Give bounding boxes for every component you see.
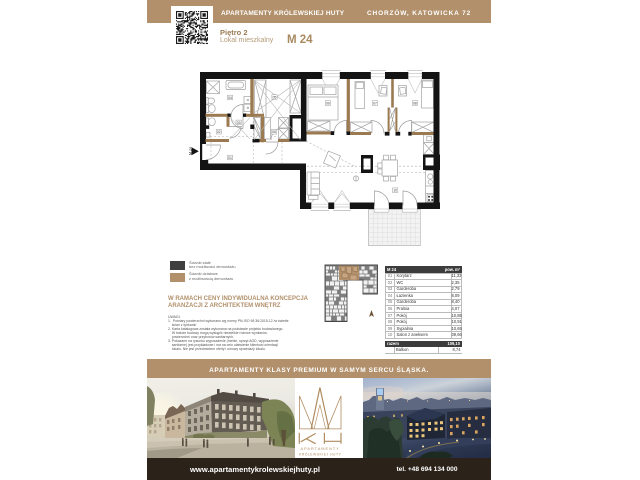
svg-text:10: 10 — [393, 189, 397, 193]
svg-text:09: 09 — [326, 101, 330, 105]
svg-text:M 24: M 24 — [189, 147, 193, 155]
svg-text:01: 01 — [228, 156, 232, 160]
svg-text:08: 08 — [413, 101, 417, 105]
svg-text:03: 03 — [237, 121, 241, 125]
svg-text:APARTAMENTY: APARTAMENTY — [300, 447, 339, 451]
svg-text:KRÓLEWSKIEJ HUTY: KRÓLEWSKIEJ HUTY — [299, 451, 342, 456]
svg-text:04: 04 — [228, 96, 232, 100]
svg-text:02: 02 — [217, 130, 221, 134]
svg-text:06: 06 — [272, 130, 276, 134]
svg-text:05: 05 — [273, 95, 277, 99]
svg-text:07: 07 — [373, 101, 377, 105]
